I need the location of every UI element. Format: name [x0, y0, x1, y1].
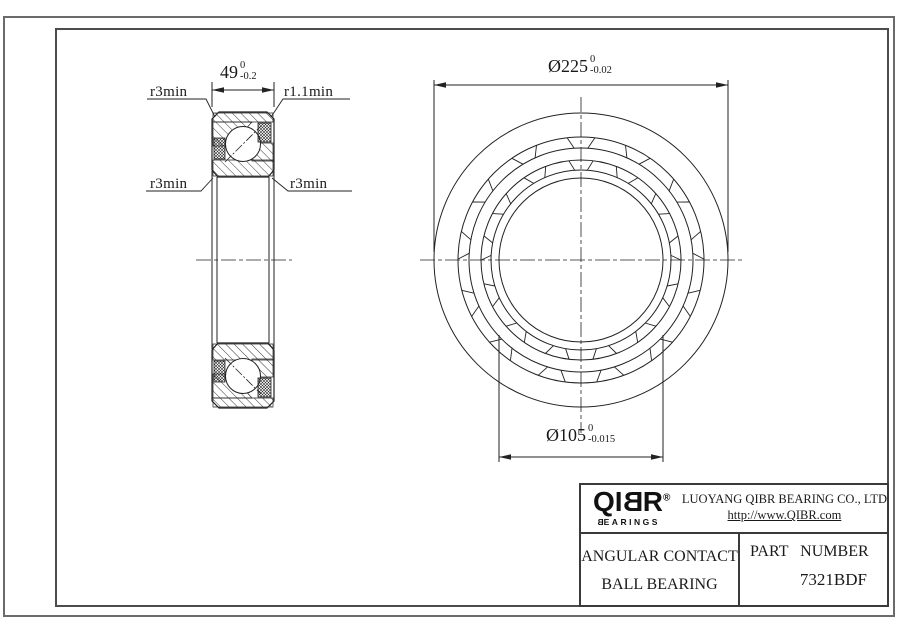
- registered-trademark-icon: ®: [663, 493, 670, 504]
- part-number-value: 7321BDF: [750, 570, 887, 590]
- bore-diameter-text: Ø105 0 -0.015: [546, 426, 615, 445]
- width-dimension-text: 49 0 -0.2: [220, 63, 257, 82]
- company-logo: QIBR® BEARINGS: [581, 485, 682, 532]
- company-info: LUOYANG QIBR BEARING CO., LTD http://www…: [682, 485, 887, 532]
- part-number-cell: PART NUMBER 7321BDF: [740, 534, 887, 605]
- dimension-value: Ø225: [548, 57, 588, 75]
- dimension-value: Ø105: [546, 426, 586, 444]
- dimension-tolerance: 0 -0.02: [590, 54, 612, 76]
- cage-section-bottom-right: [258, 378, 271, 397]
- dimension-value: 49: [220, 63, 238, 81]
- company-name: LUOYANG QIBR BEARING CO., LTD: [682, 491, 887, 507]
- logo-wordmark: QIBR®: [593, 488, 682, 516]
- bearing-drawing-page: { "drawing": { "section_view": { "width_…: [0, 0, 900, 636]
- radius-note-top-left: r3min: [150, 84, 187, 101]
- front-view: [420, 80, 744, 462]
- part-number-label: PART NUMBER: [750, 543, 887, 561]
- title-block-detail-row: ANGULAR CONTACT BALL BEARING PART NUMBER…: [581, 534, 887, 605]
- dimension-tolerance: 0 -0.015: [588, 423, 615, 445]
- cage-section-bottom-left: [214, 361, 225, 382]
- company-website-link[interactable]: http://www.QIBR.com: [682, 507, 887, 523]
- radius-note-mid-right: r3min: [290, 176, 327, 193]
- width-dimension-lines: [212, 82, 274, 107]
- cage-section-top-right: [258, 123, 271, 142]
- product-type-line2: BALL BEARING: [581, 571, 738, 599]
- radius-note-top-right: r1.1min: [284, 84, 333, 101]
- cage-section-top-left: [214, 138, 225, 159]
- logo-mirrored-b: B: [623, 488, 643, 516]
- section-view: [146, 82, 352, 408]
- title-block-header-row: QIBR® BEARINGS LUOYANG QIBR BEARING CO.,…: [581, 485, 887, 534]
- title-block: QIBR® BEARINGS LUOYANG QIBR BEARING CO.,…: [579, 483, 889, 607]
- radius-note-mid-left: r3min: [150, 176, 187, 193]
- product-type-cell: ANGULAR CONTACT BALL BEARING: [581, 534, 740, 605]
- dimension-tolerance: 0 -0.2: [240, 60, 257, 82]
- outer-diameter-text: Ø225 0 -0.02: [548, 57, 612, 76]
- logo-subtext: BEARINGS: [595, 517, 682, 527]
- product-type-line1: ANGULAR CONTACT: [581, 543, 738, 571]
